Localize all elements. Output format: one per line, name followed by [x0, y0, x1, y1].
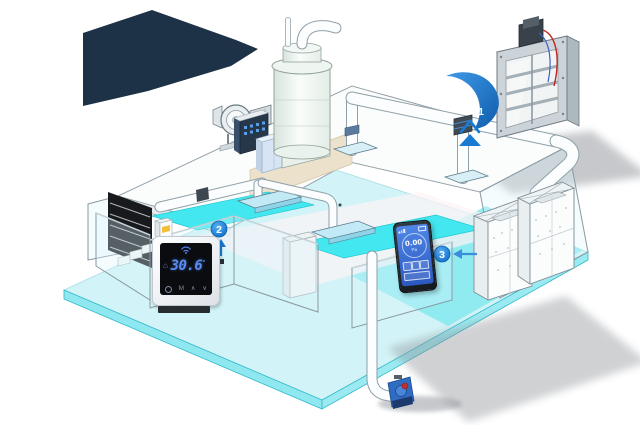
svg-text:2: 2: [216, 224, 222, 236]
thermostat-screen: ⌂ 30.6° M ∧ ∨: [160, 243, 212, 295]
wifi-icon: [180, 245, 192, 254]
thermostat-mount-shadow: [158, 306, 210, 313]
temperature-readout: 30.6°: [164, 258, 212, 274]
meter-bottom-button[interactable]: [404, 271, 431, 282]
thermostat-keys: M ∧ ∨: [165, 286, 207, 293]
power-icon[interactable]: [165, 286, 172, 293]
navy-backdrop-shape: [83, 10, 258, 106]
motorized-damper: [497, 16, 579, 138]
scene-illustration: 1 2 3: [0, 0, 640, 425]
handheld-pressure-meter: 0.00 Pa: [392, 219, 437, 294]
pressure-gauge: 0.00 Pa: [400, 232, 427, 259]
svg-text:3: 3: [439, 249, 445, 261]
svg-text:1: 1: [478, 106, 484, 118]
degree-symbol: °: [202, 259, 205, 266]
meter-button-3[interactable]: [420, 260, 430, 270]
thermostat-device: ⌂ 30.6° M ∧ ∨: [152, 236, 220, 306]
scrubber-tower: [272, 20, 336, 168]
blower-inlet: [213, 106, 222, 128]
meter-buttons: [402, 260, 431, 272]
down-key[interactable]: ∨: [202, 286, 207, 293]
signal-icon: [398, 229, 405, 234]
floor-drain-dot: [339, 204, 342, 207]
up-key[interactable]: ∧: [191, 286, 196, 293]
isometric-cleanroom-diagram: 1 2 3 ⌂ 30.6°: [0, 0, 640, 425]
pressure-unit: Pa: [411, 247, 417, 253]
meter-screen: 0.00 Pa: [396, 224, 434, 287]
ahu-cabinet-back: [518, 182, 574, 284]
mode-key[interactable]: M: [179, 286, 184, 293]
valve-handle: [402, 383, 408, 389]
damper-install-coupling: [454, 115, 472, 135]
pump-valve: [388, 375, 414, 409]
battery-icon: [418, 226, 426, 232]
